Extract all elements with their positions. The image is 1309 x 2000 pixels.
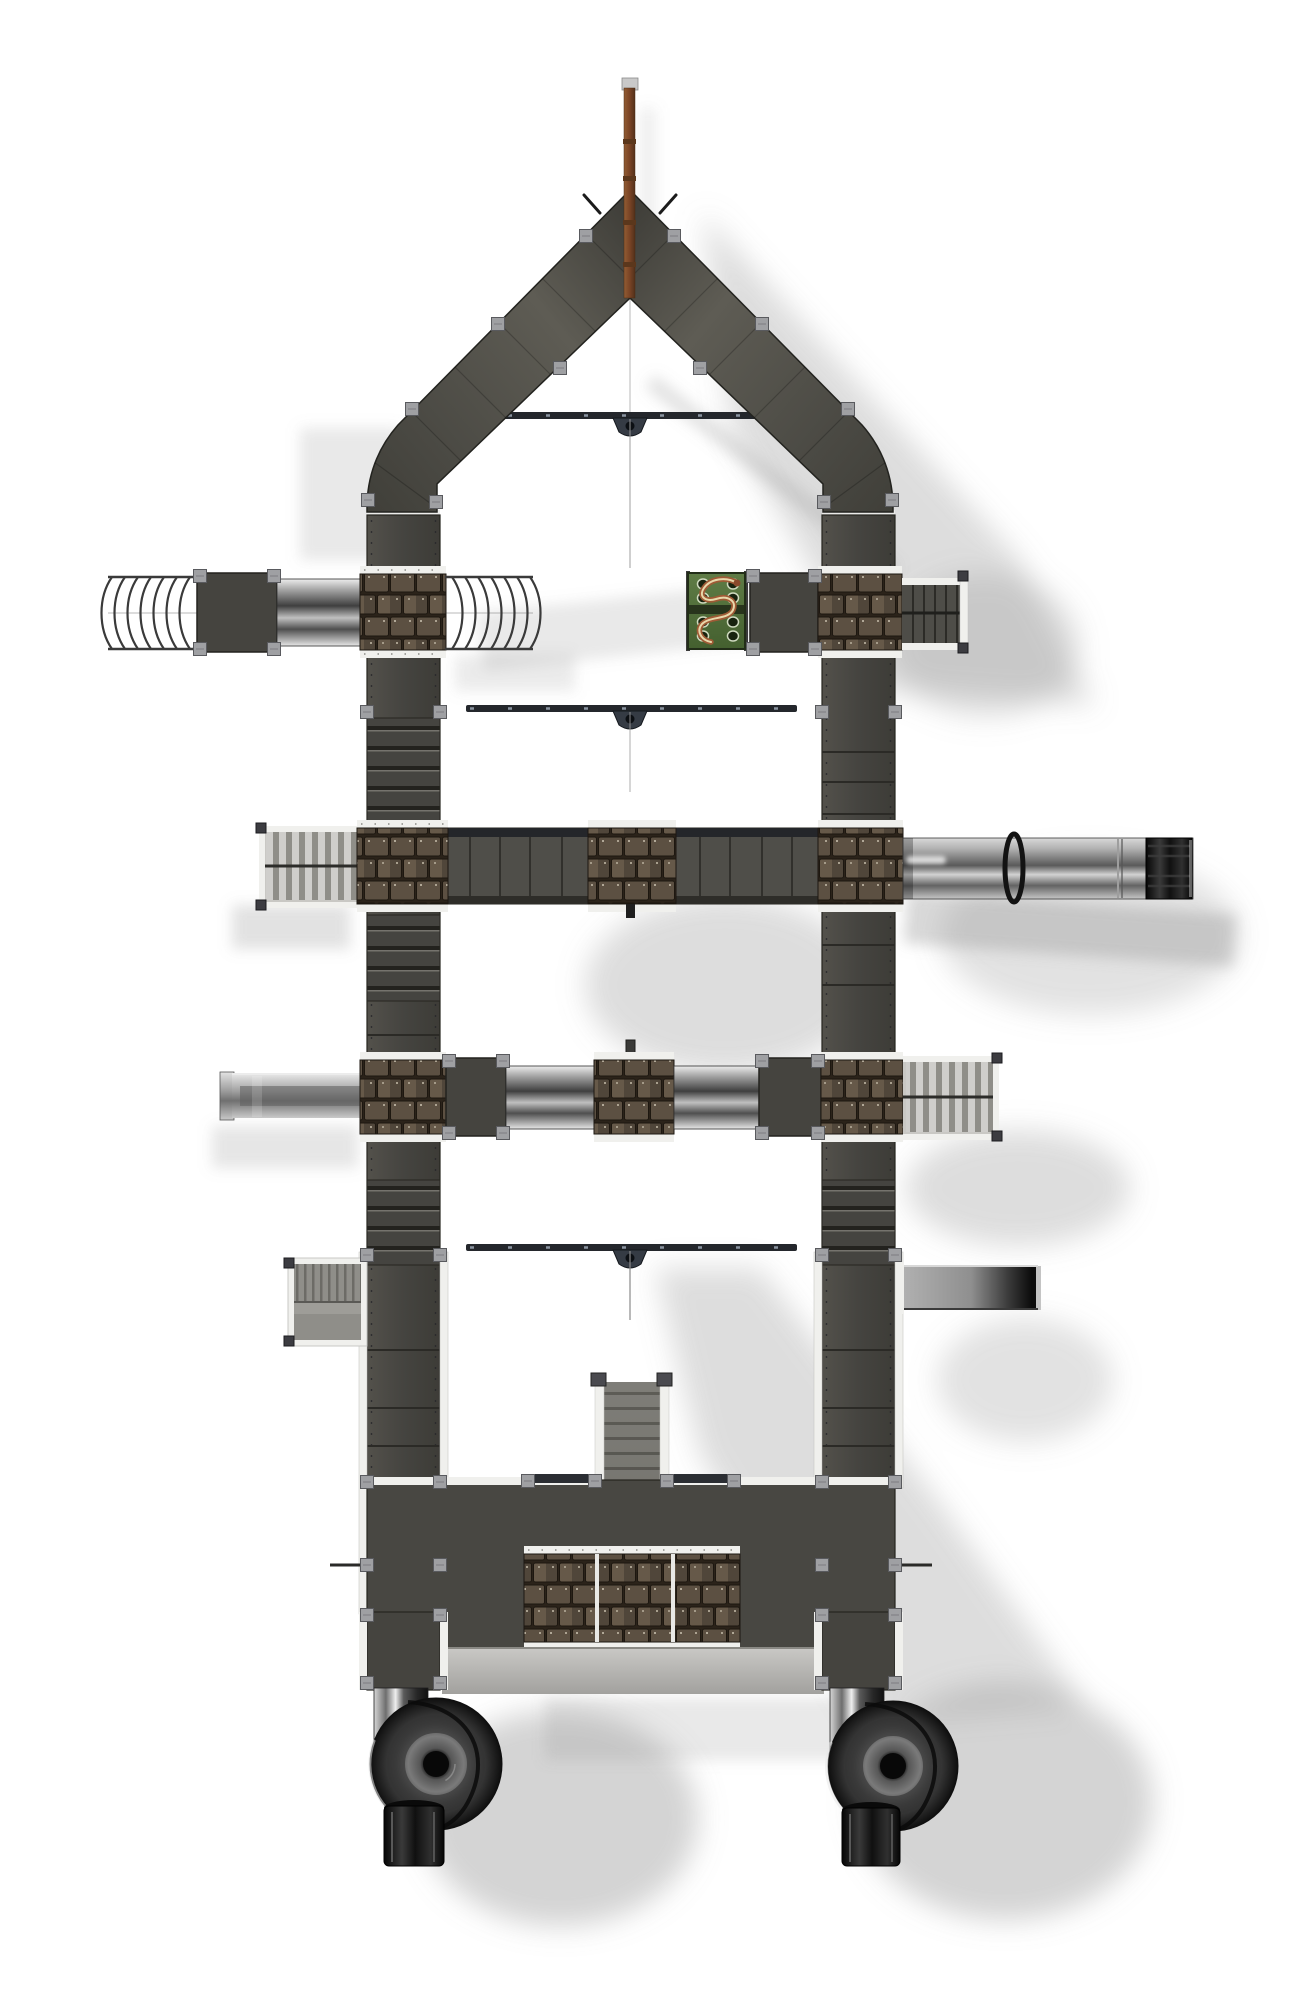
roof-finial-west [584,195,600,213]
slide-chute-east [896,1262,1041,1314]
base-shingle-row [524,1546,740,1650]
swing-beam-2 [466,705,797,792]
platform-c-east [759,1058,821,1136]
net-tunnel-west [102,577,198,649]
arm-shadow-west-b [232,905,350,949]
arm-shadow-west-c [212,1126,358,1168]
base-deck [359,1474,903,1694]
shingle-panel-c-east [821,1052,903,1142]
palisade-bridge-west [256,823,360,910]
bridge-deck-east [672,828,822,904]
center-staircase [591,1373,672,1484]
arm-shadow-east-level-c [906,1130,1130,1246]
shingle-panel-a-east [818,566,902,658]
mast [622,78,638,298]
bridge-deck-west [443,828,593,904]
crawl-tube-c-east [674,1066,759,1129]
crawl-tube-c-west [506,1066,594,1129]
wall-ladder-west-1 [367,718,440,830]
shingle-panel-b-east [818,820,903,912]
shingle-panel-c-center [594,1040,674,1142]
rings-shadow-inner [455,655,575,691]
right-wall [822,515,895,1488]
platform-a-west [197,573,277,652]
ramp-west [284,1258,367,1346]
recessed-floor [442,1648,824,1694]
render-stage [0,0,1309,2000]
slide-exit-west [384,1806,444,1866]
wall-ladder-west-2 [367,915,440,1001]
snake-climb-panel [686,571,748,651]
platform-c-west [446,1058,506,1136]
shingle-panel-b-center [588,820,676,918]
crawl-tube-west [277,579,362,646]
stair-bridge-east [902,571,968,653]
chute-shadow-east [937,1318,1113,1442]
roof-finial-east [660,195,676,213]
shingle-panel-b-west [357,820,448,912]
wall-ladder-west-3 [367,1180,440,1265]
palisade-bridge-east [903,1053,1002,1141]
shingle-panel-c-west [360,1052,446,1142]
long-crawl-tube-east [903,834,1193,902]
base-shadow [545,1698,855,1760]
shingle-panel-a-west [360,566,446,658]
wall-ladder-east-1 [822,1180,895,1265]
render-canvas [0,0,1309,2000]
platform-a-east [750,573,818,652]
slide-chute-west [220,1072,360,1120]
